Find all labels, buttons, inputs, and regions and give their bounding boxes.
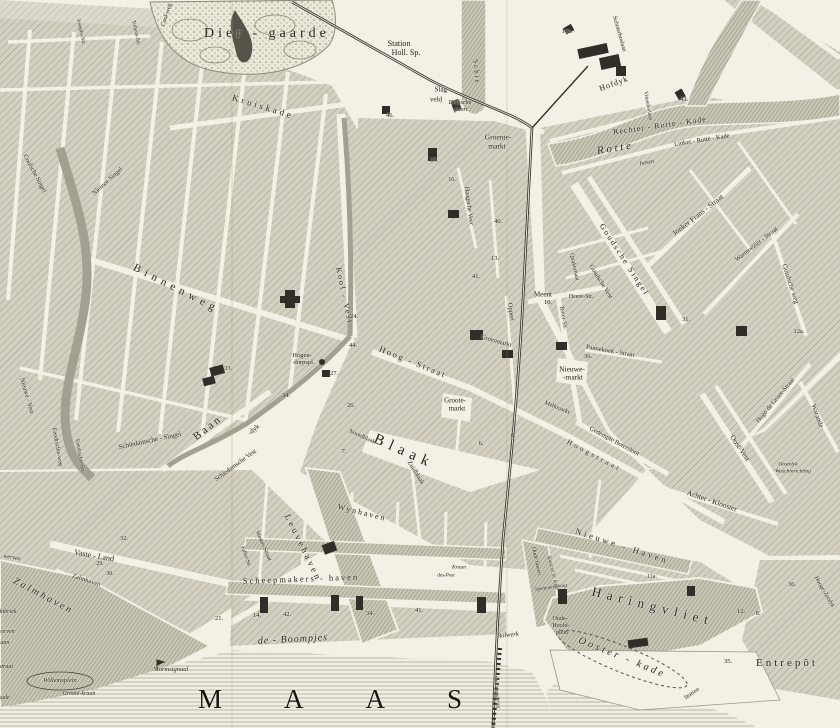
- map-label: 37.: [430, 158, 438, 165]
- map-label: Kraan: [452, 565, 466, 571]
- map-label: Binnenweg: [131, 263, 221, 316]
- map-label: Boter-Str.: [558, 306, 568, 330]
- map-label: haven: [639, 159, 654, 167]
- map-label: 31.: [682, 317, 690, 324]
- map-label: 14a.: [561, 29, 572, 36]
- map-label: Groente-: [485, 133, 512, 141]
- map-label: Blaak: [371, 432, 436, 472]
- map-label: R o t t e: [596, 141, 632, 157]
- map-label: markt: [488, 142, 506, 150]
- map-label: Schoterboslaan: [611, 16, 627, 53]
- map-label: Ooster - kade: [577, 636, 667, 680]
- map-label: Hugo de Groot-Straat: [755, 377, 796, 424]
- map-label: Oude-: [553, 616, 568, 622]
- map-label: 14.: [253, 613, 261, 620]
- map-label: 34.: [366, 611, 374, 618]
- map-label: Rechter - Rotte - Kade: [613, 115, 708, 136]
- map-label: Wester-Straat: [254, 530, 273, 562]
- map-label: Scheepmakers - haven: [243, 573, 360, 586]
- map-label: Z a l m h a v e n: [11, 576, 73, 615]
- map-label: 30.: [106, 571, 114, 577]
- map-label: 29.: [96, 561, 104, 567]
- map-label: Haagsche Veer: [462, 186, 473, 225]
- map-label: straat: [0, 664, 13, 670]
- map-label: Schiedamsche - Singel: [118, 431, 182, 451]
- map-label: Vriendenlaan: [642, 91, 653, 121]
- map-label: 27.: [330, 371, 338, 378]
- map-label: 46.: [386, 113, 394, 120]
- map-label: Waschinrichting: [775, 469, 811, 475]
- map-label: 26.: [347, 403, 355, 410]
- map-label: 10.: [544, 300, 552, 307]
- map-label: poort: [454, 107, 467, 113]
- map-label: Cool-weg: [160, 3, 173, 27]
- map-label: 41.: [415, 608, 423, 615]
- map-label: Josephs-Str.: [75, 18, 86, 45]
- map-label: Warande: [809, 403, 824, 429]
- map-label: 32.: [120, 536, 128, 542]
- map-label: de - Boompjes: [258, 633, 329, 647]
- map-label: Groote-kraan: [63, 691, 96, 697]
- map-label: Holl. Sp.: [392, 49, 421, 57]
- map-label: des-Post: [437, 574, 454, 579]
- map-label: B a a n: [191, 415, 222, 443]
- map-label: 36.: [584, 354, 592, 361]
- map-label: Groote-: [444, 398, 466, 405]
- map-label: laan: [0, 640, 9, 646]
- map-label: Delftsche: [449, 100, 472, 106]
- map-label: 36.: [788, 582, 796, 589]
- historic-city-map: MAAS Dier - gaarde Entrepôt StationHoll.…: [0, 0, 840, 728]
- map-label: werven: [3, 554, 21, 563]
- map-label: Bolwerk: [497, 632, 519, 641]
- map-label: 41.: [472, 274, 480, 281]
- map-label: plein: [556, 630, 568, 636]
- map-label: 13.: [491, 256, 499, 263]
- map-label: -markt: [563, 373, 583, 381]
- map-label: Spanjaardsbrug: [535, 583, 567, 592]
- map-label: Haringvliet: [591, 585, 716, 628]
- map-label: Nieuwe - Haven: [574, 527, 670, 565]
- map-label: 11a.: [647, 574, 657, 580]
- map-label: 42.: [283, 612, 291, 619]
- park-label-diergaarde: Dier - gaarde: [204, 27, 330, 41]
- map-label: Groenmarkt: [480, 335, 512, 350]
- map-label: Pannekoek - Straat: [585, 345, 634, 360]
- map-label: Stormsignaal: [154, 667, 189, 674]
- map-labels-layer: MAAS Dier - gaarde Entrepôt StationHoll.…: [0, 0, 840, 728]
- map-label: Achter - Klooster: [686, 489, 738, 513]
- map-label: 8.: [756, 611, 761, 617]
- map-label: 35.: [724, 659, 732, 666]
- map-label: Juffer-Str.: [239, 546, 252, 569]
- map-label: Goudsche weg: [780, 263, 799, 305]
- map-label: 24.: [350, 314, 358, 321]
- map-label: Schie: [471, 59, 480, 85]
- map-label: Hooge-Zeedyk: [813, 575, 836, 608]
- map-label: Hoog - Straat: [378, 345, 448, 380]
- map-label: 8.: [511, 433, 516, 440]
- map-label: Noordblaak: [348, 428, 376, 445]
- map-label: Tollens-Str.: [130, 20, 141, 46]
- map-label: Heere-Str.: [569, 294, 594, 300]
- entrepot-label: Entrepôt: [756, 658, 818, 669]
- map-label: Slag-: [435, 87, 450, 94]
- map-label: kade: [0, 695, 10, 701]
- map-label: Meent: [534, 292, 552, 299]
- map-label: dorpspl.: [293, 360, 314, 367]
- map-label: 33.: [224, 366, 232, 373]
- map-label: Nieuwe Singel: [92, 167, 125, 198]
- map-label: Wynhaven: [337, 503, 388, 523]
- map-label: 43.: [680, 97, 688, 104]
- map-label: 12.: [737, 609, 745, 616]
- map-label: Kruiskade: [231, 93, 295, 120]
- map-label: Quakernaat: [568, 253, 580, 281]
- map-label: 7.: [342, 449, 347, 456]
- map-label: fabriek: [0, 609, 17, 615]
- map-label: Oost-Vest: [729, 434, 752, 463]
- map-label: Schiedamsche Vest: [214, 449, 258, 484]
- map-label: Warmoezier - Straat: [734, 226, 779, 263]
- map-label: Hoofd-: [552, 623, 569, 629]
- map-label: 44.: [349, 343, 357, 350]
- map-label: Coolsche Singel: [21, 154, 47, 195]
- sea-label-maas: MAAS: [198, 686, 524, 713]
- map-label: Hofdyk: [598, 75, 629, 93]
- map-label: 12a.: [793, 329, 804, 336]
- map-label: Willemsplein: [43, 678, 77, 685]
- map-label: 6.: [479, 441, 484, 448]
- map-label: Jonker Frans - Straat: [671, 193, 725, 237]
- map-label: 21.: [215, 616, 223, 623]
- map-label: Eendrachts-Str.: [73, 439, 84, 473]
- map-label: Linker - Rotte - Kade: [674, 133, 730, 148]
- map-label: veld: [430, 97, 442, 104]
- map-label: Oppert: [506, 303, 515, 322]
- map-label: Vaste - Land: [73, 549, 114, 564]
- map-label: 34.: [282, 393, 290, 400]
- map-label: Melkmarkt: [544, 400, 571, 416]
- map-label: 16.: [448, 177, 456, 183]
- map-label: Nieuwe - Vest: [18, 377, 34, 414]
- map-label: markt: [449, 406, 465, 413]
- map-label: Station: [683, 687, 700, 702]
- map-label: Oostelyk: [778, 462, 797, 468]
- map-label: Oude haven: [530, 546, 542, 575]
- map-label: Station: [388, 40, 411, 48]
- map-label: Eendrachts-weg: [51, 427, 64, 466]
- map-label: werven: [0, 629, 15, 635]
- map-label: -dyk: [247, 423, 261, 437]
- map-label: Zalmhaven: [71, 573, 101, 588]
- map-label: 40.: [494, 219, 502, 226]
